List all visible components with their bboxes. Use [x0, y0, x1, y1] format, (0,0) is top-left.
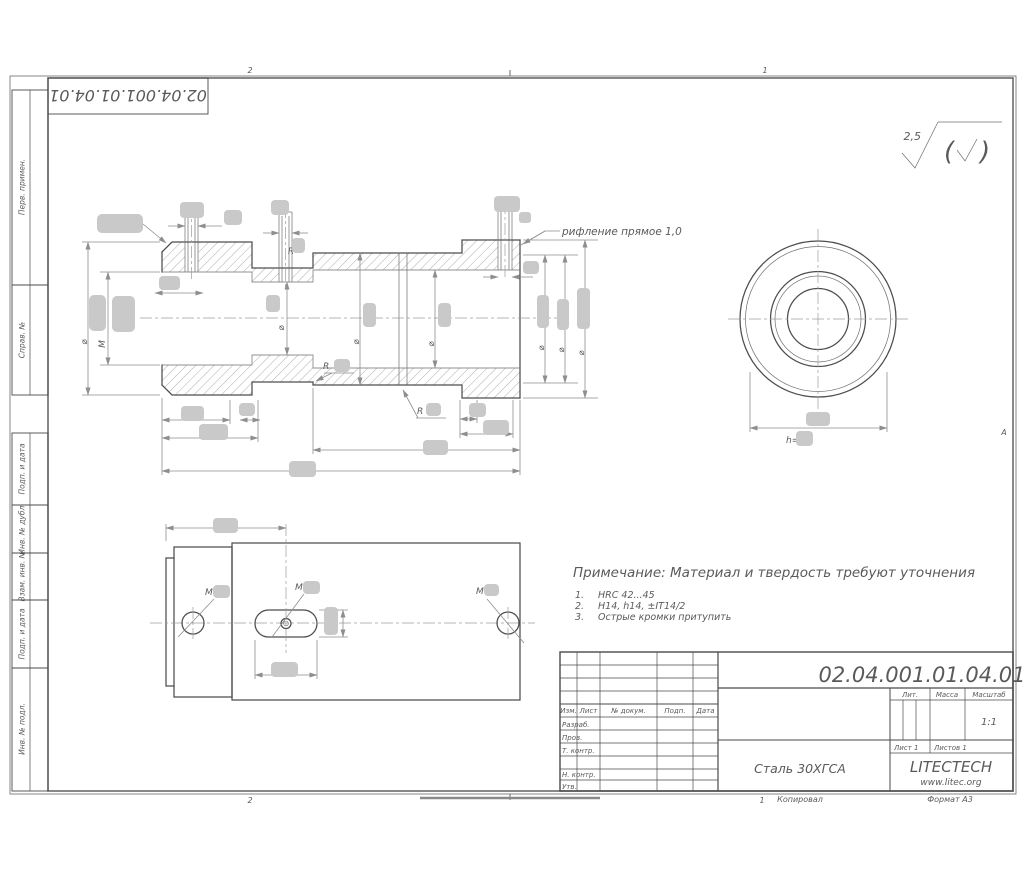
redacted-dimension: [239, 403, 255, 416]
top-stamp-number: 02.04.001.01.04.01: [49, 86, 207, 105]
redacted-dimension: [334, 359, 350, 372]
diameter-symbol: ⌀: [537, 345, 547, 350]
col-header: Подп.: [664, 707, 685, 715]
note-text: H14, h14, ±IT14/2: [598, 601, 685, 612]
zone-label: 1: [759, 796, 764, 805]
bore-top: [162, 270, 520, 282]
format-label: Формат А3: [927, 795, 973, 804]
thread-symbol: M: [205, 588, 213, 598]
redacted-dimension: [537, 295, 549, 328]
diameter-symbol: ⌀: [427, 341, 437, 347]
redacted-dimension: [181, 406, 204, 421]
paren-open: (: [944, 137, 956, 167]
diameter-symbol: ⌀: [277, 325, 287, 331]
col-header: Лист: [579, 707, 599, 715]
sheets-total: Листов 1: [933, 744, 967, 752]
approval-row-label: Т. контр.: [562, 747, 595, 755]
margin-label: Подп. и дата: [18, 608, 27, 659]
section-hatching: [162, 240, 520, 398]
scale-label: Масштаб: [972, 691, 1006, 699]
redacted-dimension: [213, 518, 238, 533]
thread-leader: [272, 594, 304, 637]
margin-box: Подп. и дата: [12, 433, 48, 505]
sheet-number: Лист 1: [893, 744, 918, 752]
thread-symbol: M: [98, 340, 108, 348]
redacted-dimension: [271, 200, 289, 215]
material: Сталь 30ХГСА: [754, 761, 846, 776]
mass-label: Масса: [936, 691, 958, 699]
redacted-dimension: [363, 303, 376, 327]
thread-symbol: M: [476, 587, 484, 597]
redacted-dimension: [89, 295, 106, 331]
scale-value: 1:1: [981, 717, 997, 728]
redacted-dimension: [426, 403, 441, 416]
redacted-dimension: [199, 424, 228, 440]
bottom-view: M M M: [150, 524, 535, 700]
margin-label: Справ. №: [18, 322, 27, 359]
notes-title: Примечание: Материал и твердость требуют…: [573, 565, 975, 581]
redacted-dimension: [423, 440, 448, 455]
title-block: 02.04.001.01.04.01 Изм. Лист № докум. По…: [560, 652, 1024, 804]
note-number: 3.: [575, 612, 584, 623]
redacted-dimension: [289, 461, 316, 477]
redacted-dimension: [438, 303, 451, 327]
redacted-dimension: [523, 261, 539, 274]
drawing-sheet: 2 1 2 1 А Перв. примен. Справ. № Подп. и…: [0, 0, 1024, 878]
thread-symbol: M: [295, 583, 303, 593]
margin-label: Подп. и дата: [18, 443, 27, 494]
chamfer-leader: [143, 224, 166, 243]
knurl-callout: рифление прямое 1,0: [561, 226, 682, 238]
redacted-dimension: [494, 196, 520, 212]
zone-label: 2: [247, 66, 252, 75]
lit-label: Лит.: [901, 691, 918, 699]
zone-row-label: А: [1000, 428, 1006, 437]
doc-number: 02.04.001.01.04.01: [818, 663, 1024, 687]
left-margin-stamp: Перв. примен. Справ. № Подп. и дата Инв.…: [12, 90, 48, 791]
roughness-check-small-icon: [957, 139, 977, 161]
approval-row-label: Разраб.: [562, 721, 590, 729]
approval-row-label: Н. контр.: [562, 771, 596, 779]
radius-symbol: R: [323, 362, 329, 372]
col-header: Изм.: [560, 707, 576, 715]
redacted-dimension: [271, 662, 298, 677]
margin-label: Взам. инв. №: [18, 550, 27, 601]
diameter-symbol: ⌀: [557, 347, 567, 352]
radius-symbol: R: [417, 407, 423, 417]
col-header: № докум.: [610, 707, 646, 715]
diameter-symbol: ⌀: [80, 339, 90, 345]
redacted-dimension: [266, 295, 280, 312]
margin-box: Перв. примен.: [12, 90, 48, 285]
redacted-dimension: [796, 431, 813, 446]
approval-row-label: Утв.: [562, 783, 577, 791]
redacted-dimension: [557, 299, 569, 330]
knurl-leader: [521, 231, 560, 245]
diameter-symbol: ⌀: [577, 350, 587, 355]
surface-roughness-symbol: 2,5 ( ): [902, 122, 1002, 168]
approval-row-label: Пров.: [562, 734, 582, 742]
redacted-dimension: [180, 202, 204, 218]
roughness-check-icon: [902, 122, 938, 168]
margin-box: Справ. №: [12, 285, 48, 395]
note-number: 1.: [575, 590, 584, 601]
redacted-dimension: [519, 212, 531, 223]
zone-label: 2: [247, 796, 252, 805]
engineering-drawing: 2 1 2 1 А Перв. примен. Справ. № Подп. и…: [0, 0, 1024, 878]
margin-box: Инв. № дубл.: [12, 503, 48, 554]
redacted-dimension: [577, 288, 590, 329]
company-website: www.litec.org: [920, 778, 981, 788]
redacted-dimension: [97, 214, 143, 233]
roughness-value: 2,5: [904, 130, 922, 143]
margin-label: Перв. примен.: [18, 159, 27, 215]
redacted-dimension: [469, 403, 486, 417]
redacted-dimension: [303, 581, 320, 594]
redacted-dimension: [159, 276, 180, 290]
copied-by-label: Копировал: [777, 795, 823, 804]
col-header: Дата: [695, 707, 714, 715]
note-text: HRC 42...45: [598, 590, 655, 601]
margin-box: Подп. и дата: [12, 600, 48, 668]
zone-label: 1: [762, 66, 767, 75]
top-number-stamp: 02.04.001.01.04.01: [48, 78, 208, 114]
main-section-view: [140, 202, 560, 398]
margin-box: Взам. инв. №: [12, 550, 48, 601]
company-name: LITECTECH: [910, 758, 992, 776]
redacted-dimension: [484, 584, 499, 596]
redacted-dimension: [213, 585, 230, 598]
paren-close: ): [978, 137, 990, 167]
notes-block: Примечание: Материал и твердость требуют…: [573, 565, 975, 623]
note-text: Острые кромки притупить: [598, 612, 731, 623]
diameter-symbol: ⌀: [352, 339, 362, 345]
redacted-dimension: [292, 238, 305, 253]
redacted-dimension: [483, 420, 509, 435]
redacted-dimension: [112, 296, 135, 332]
margin-label: Инв. № подл.: [18, 703, 27, 755]
margin-box: Инв. № подл.: [12, 668, 48, 791]
redacted-dimension: [224, 210, 242, 225]
redacted-dimension: [806, 412, 830, 426]
note-number: 2.: [575, 601, 584, 612]
margin-label: Инв. № дубл.: [18, 503, 27, 554]
redacted-dimension: [324, 607, 338, 635]
